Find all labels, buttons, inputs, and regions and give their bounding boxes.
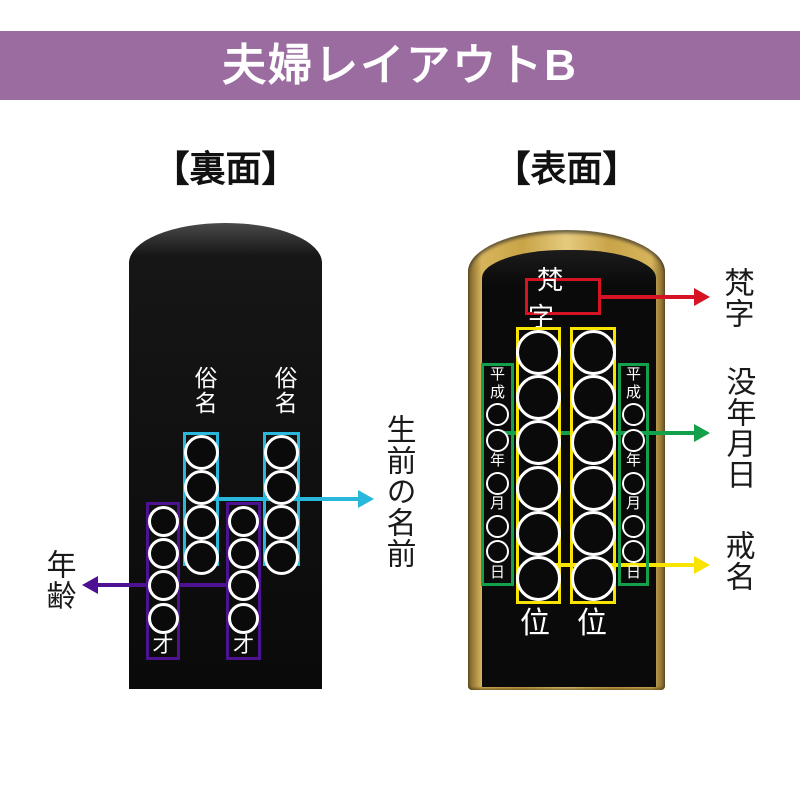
annotation-age: 年齢 <box>42 549 74 611</box>
date-slot-circle <box>486 515 509 538</box>
annotation-kaimyo: 戒名 <box>721 530 753 592</box>
character-slot-circle <box>264 470 299 505</box>
character-slot-circle <box>148 538 179 569</box>
title-banner: 夫婦レイアウトB <box>0 31 800 100</box>
secular-name-label-1: 俗名 <box>191 366 215 416</box>
character-slot-circle <box>184 435 219 470</box>
character-slot-circle <box>228 603 259 634</box>
secular-name-box-2 <box>263 432 300 566</box>
annotation-birth-name: 生前の名前 <box>382 414 414 569</box>
character-slot-circle <box>516 420 561 465</box>
character-slot-circle <box>516 375 561 420</box>
age-suffix-label-2: 才 <box>233 635 254 656</box>
date-char: 年 <box>490 454 505 469</box>
death-date-box-2: 平成年月日 <box>618 363 649 586</box>
character-slot-circle <box>148 603 179 634</box>
date-slot-circle <box>486 403 509 426</box>
character-slot-circle <box>571 375 616 420</box>
character-slot-circle <box>228 570 259 601</box>
character-slot-circle <box>571 330 616 375</box>
bonji-annotation-line <box>598 295 694 299</box>
layout-diagram: 夫婦レイアウトB 【裏面】 【表面】 俗名 俗名 才 才 梵字 平成年月日 平成… <box>0 0 800 800</box>
page-title: 夫婦レイアウトB <box>0 31 800 100</box>
date-char: 月 <box>490 497 505 512</box>
kaimyo-box-1 <box>516 327 561 604</box>
character-slot-circle <box>148 506 179 537</box>
character-slot-circle <box>516 511 561 556</box>
date-slot-circle <box>622 403 645 426</box>
character-slot-circle <box>184 505 219 540</box>
age-annotation-arrowhead <box>82 576 98 594</box>
date-slot-circle <box>622 515 645 538</box>
character-slot-circle <box>516 466 561 511</box>
character-slot-circle <box>184 470 219 505</box>
kaimyo-annotation-arrowhead <box>694 556 710 574</box>
back-tablet: 俗名 俗名 才 才 <box>129 223 322 689</box>
age-box-1: 才 <box>146 502 180 660</box>
character-slot-circle <box>228 506 259 537</box>
character-slot-circle <box>571 556 616 601</box>
date-char: 平 <box>490 368 505 383</box>
name-annotation-arrowhead <box>358 490 374 508</box>
character-slot-circle <box>264 505 299 540</box>
age-suffix-label-1: 才 <box>153 635 174 656</box>
character-slot-circle <box>228 538 259 569</box>
date-slot-circle <box>622 429 645 452</box>
character-slot-circle <box>264 435 299 470</box>
bonji-text: 梵字 <box>528 260 598 334</box>
date-char: 成 <box>626 386 641 401</box>
character-slot-circle <box>184 540 219 575</box>
kaimyo-annotation-line <box>540 563 694 567</box>
annotation-death-date: 没年月日 <box>722 366 754 490</box>
date-char: 日 <box>490 566 505 581</box>
bonji-annotation-arrowhead <box>694 288 710 306</box>
rank-char-2: 位 <box>577 609 607 639</box>
date-slot-circle <box>622 472 645 495</box>
date-char: 年 <box>626 454 641 469</box>
age-box-2: 才 <box>226 502 261 660</box>
character-slot-circle <box>148 570 179 601</box>
kaimyo-box-2 <box>570 327 616 604</box>
death-date-box-1: 平成年月日 <box>481 363 514 586</box>
character-slot-circle <box>264 540 299 575</box>
character-slot-circle <box>516 330 561 375</box>
rank-char-1: 位 <box>520 609 550 639</box>
back-side-heading: 【裏面】 <box>119 140 332 192</box>
front-side-heading: 【表面】 <box>458 140 675 192</box>
character-slot-circle <box>516 556 561 601</box>
date-char: 平 <box>626 368 641 383</box>
secular-name-box-1 <box>183 432 219 566</box>
character-slot-circle <box>571 420 616 465</box>
front-tablet: 梵字 平成年月日 平成年月日 位 位 <box>468 230 665 690</box>
death-date-annotation-arrowhead <box>694 424 710 442</box>
date-char: 成 <box>490 386 505 401</box>
secular-name-label-2: 俗名 <box>271 366 295 416</box>
date-char: 日 <box>626 566 641 581</box>
date-slot-circle <box>486 472 509 495</box>
annotation-bonji: 梵字 <box>720 267 752 329</box>
date-slot-circle <box>622 540 645 563</box>
date-char: 月 <box>626 497 641 512</box>
character-slot-circle <box>571 511 616 556</box>
date-slot-circle <box>486 540 509 563</box>
character-slot-circle <box>571 466 616 511</box>
bonji-box: 梵字 <box>525 278 601 315</box>
date-slot-circle <box>486 429 509 452</box>
